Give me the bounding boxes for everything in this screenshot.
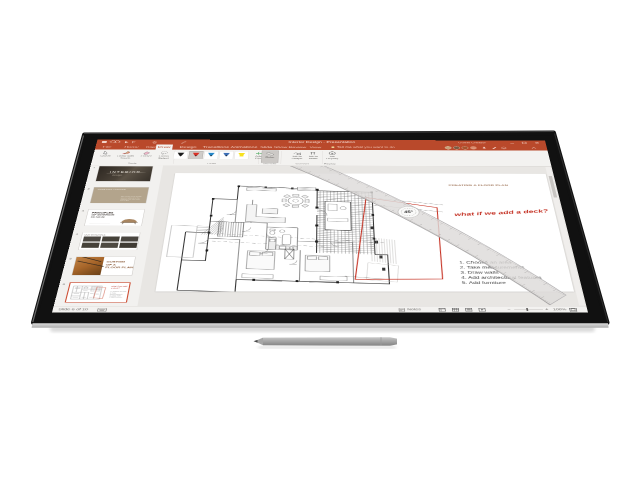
svg-text:45°: 45° — [404, 210, 414, 214]
